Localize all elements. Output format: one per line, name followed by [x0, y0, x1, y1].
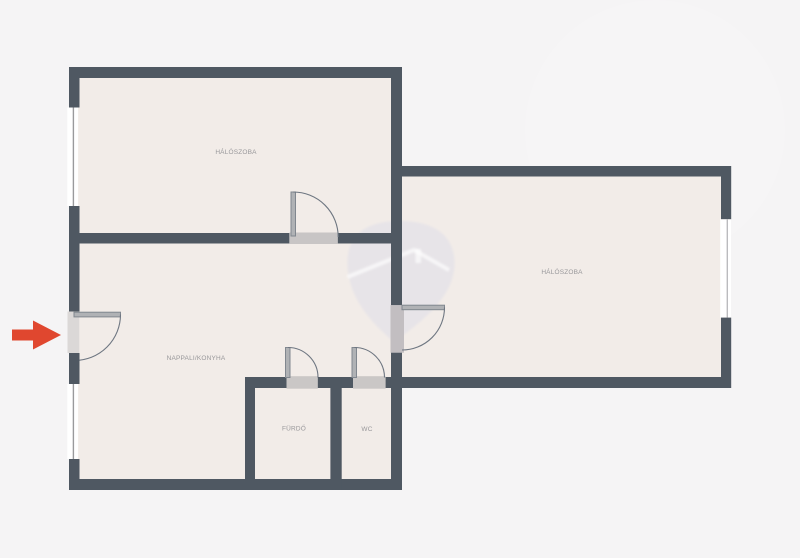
svg-text:FÜRDŐ: FÜRDŐ [282, 424, 306, 433]
svg-text:WC: WC [361, 426, 372, 433]
svg-text:NAPPALI/KONYHA: NAPPALI/KONYHA [167, 355, 226, 362]
svg-text:HÁLÓSZOBA: HÁLÓSZOBA [215, 147, 257, 156]
svg-text:HÁLÓSZOBA: HÁLÓSZOBA [541, 267, 583, 276]
